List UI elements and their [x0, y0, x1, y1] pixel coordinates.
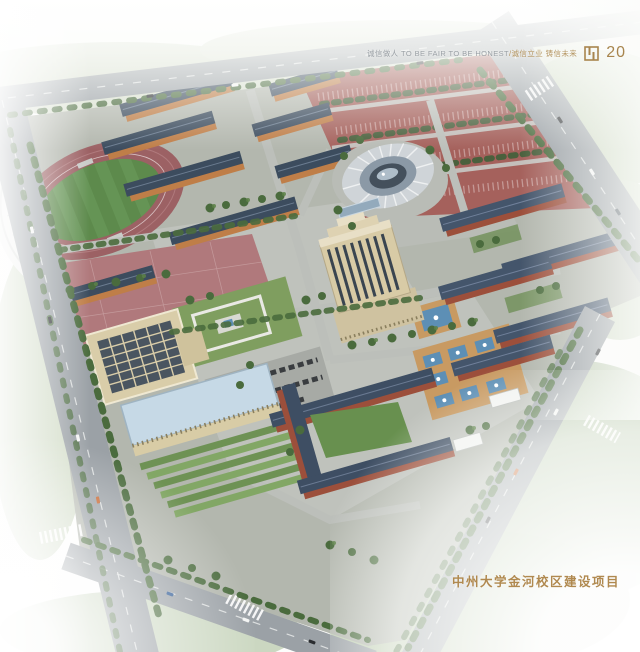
project-title: 中州大学金河校区建设项目 [452, 571, 612, 590]
page-header: 诚信做人 TO BE FAIR TO BE HONEST/诚信立业 铸信未来 2… [367, 44, 626, 62]
page-number: 20 [606, 44, 626, 62]
gold-seal-icon [584, 46, 599, 61]
slogan-cn-secondary: 诚信立业 铸信未来 [512, 49, 578, 58]
campus-aerial-rendering [0, 0, 640, 652]
brochure-page: 诚信做人 TO BE FAIR TO BE HONEST/诚信立业 铸信未来 2… [0, 0, 640, 652]
slogan-text: 诚信做人 TO BE FAIR TO BE HONEST/诚信立业 铸信未来 [367, 48, 577, 59]
slogan-cn-primary: 诚信做人 [367, 49, 399, 58]
slogan-en: TO BE FAIR TO BE HONEST [401, 49, 509, 58]
